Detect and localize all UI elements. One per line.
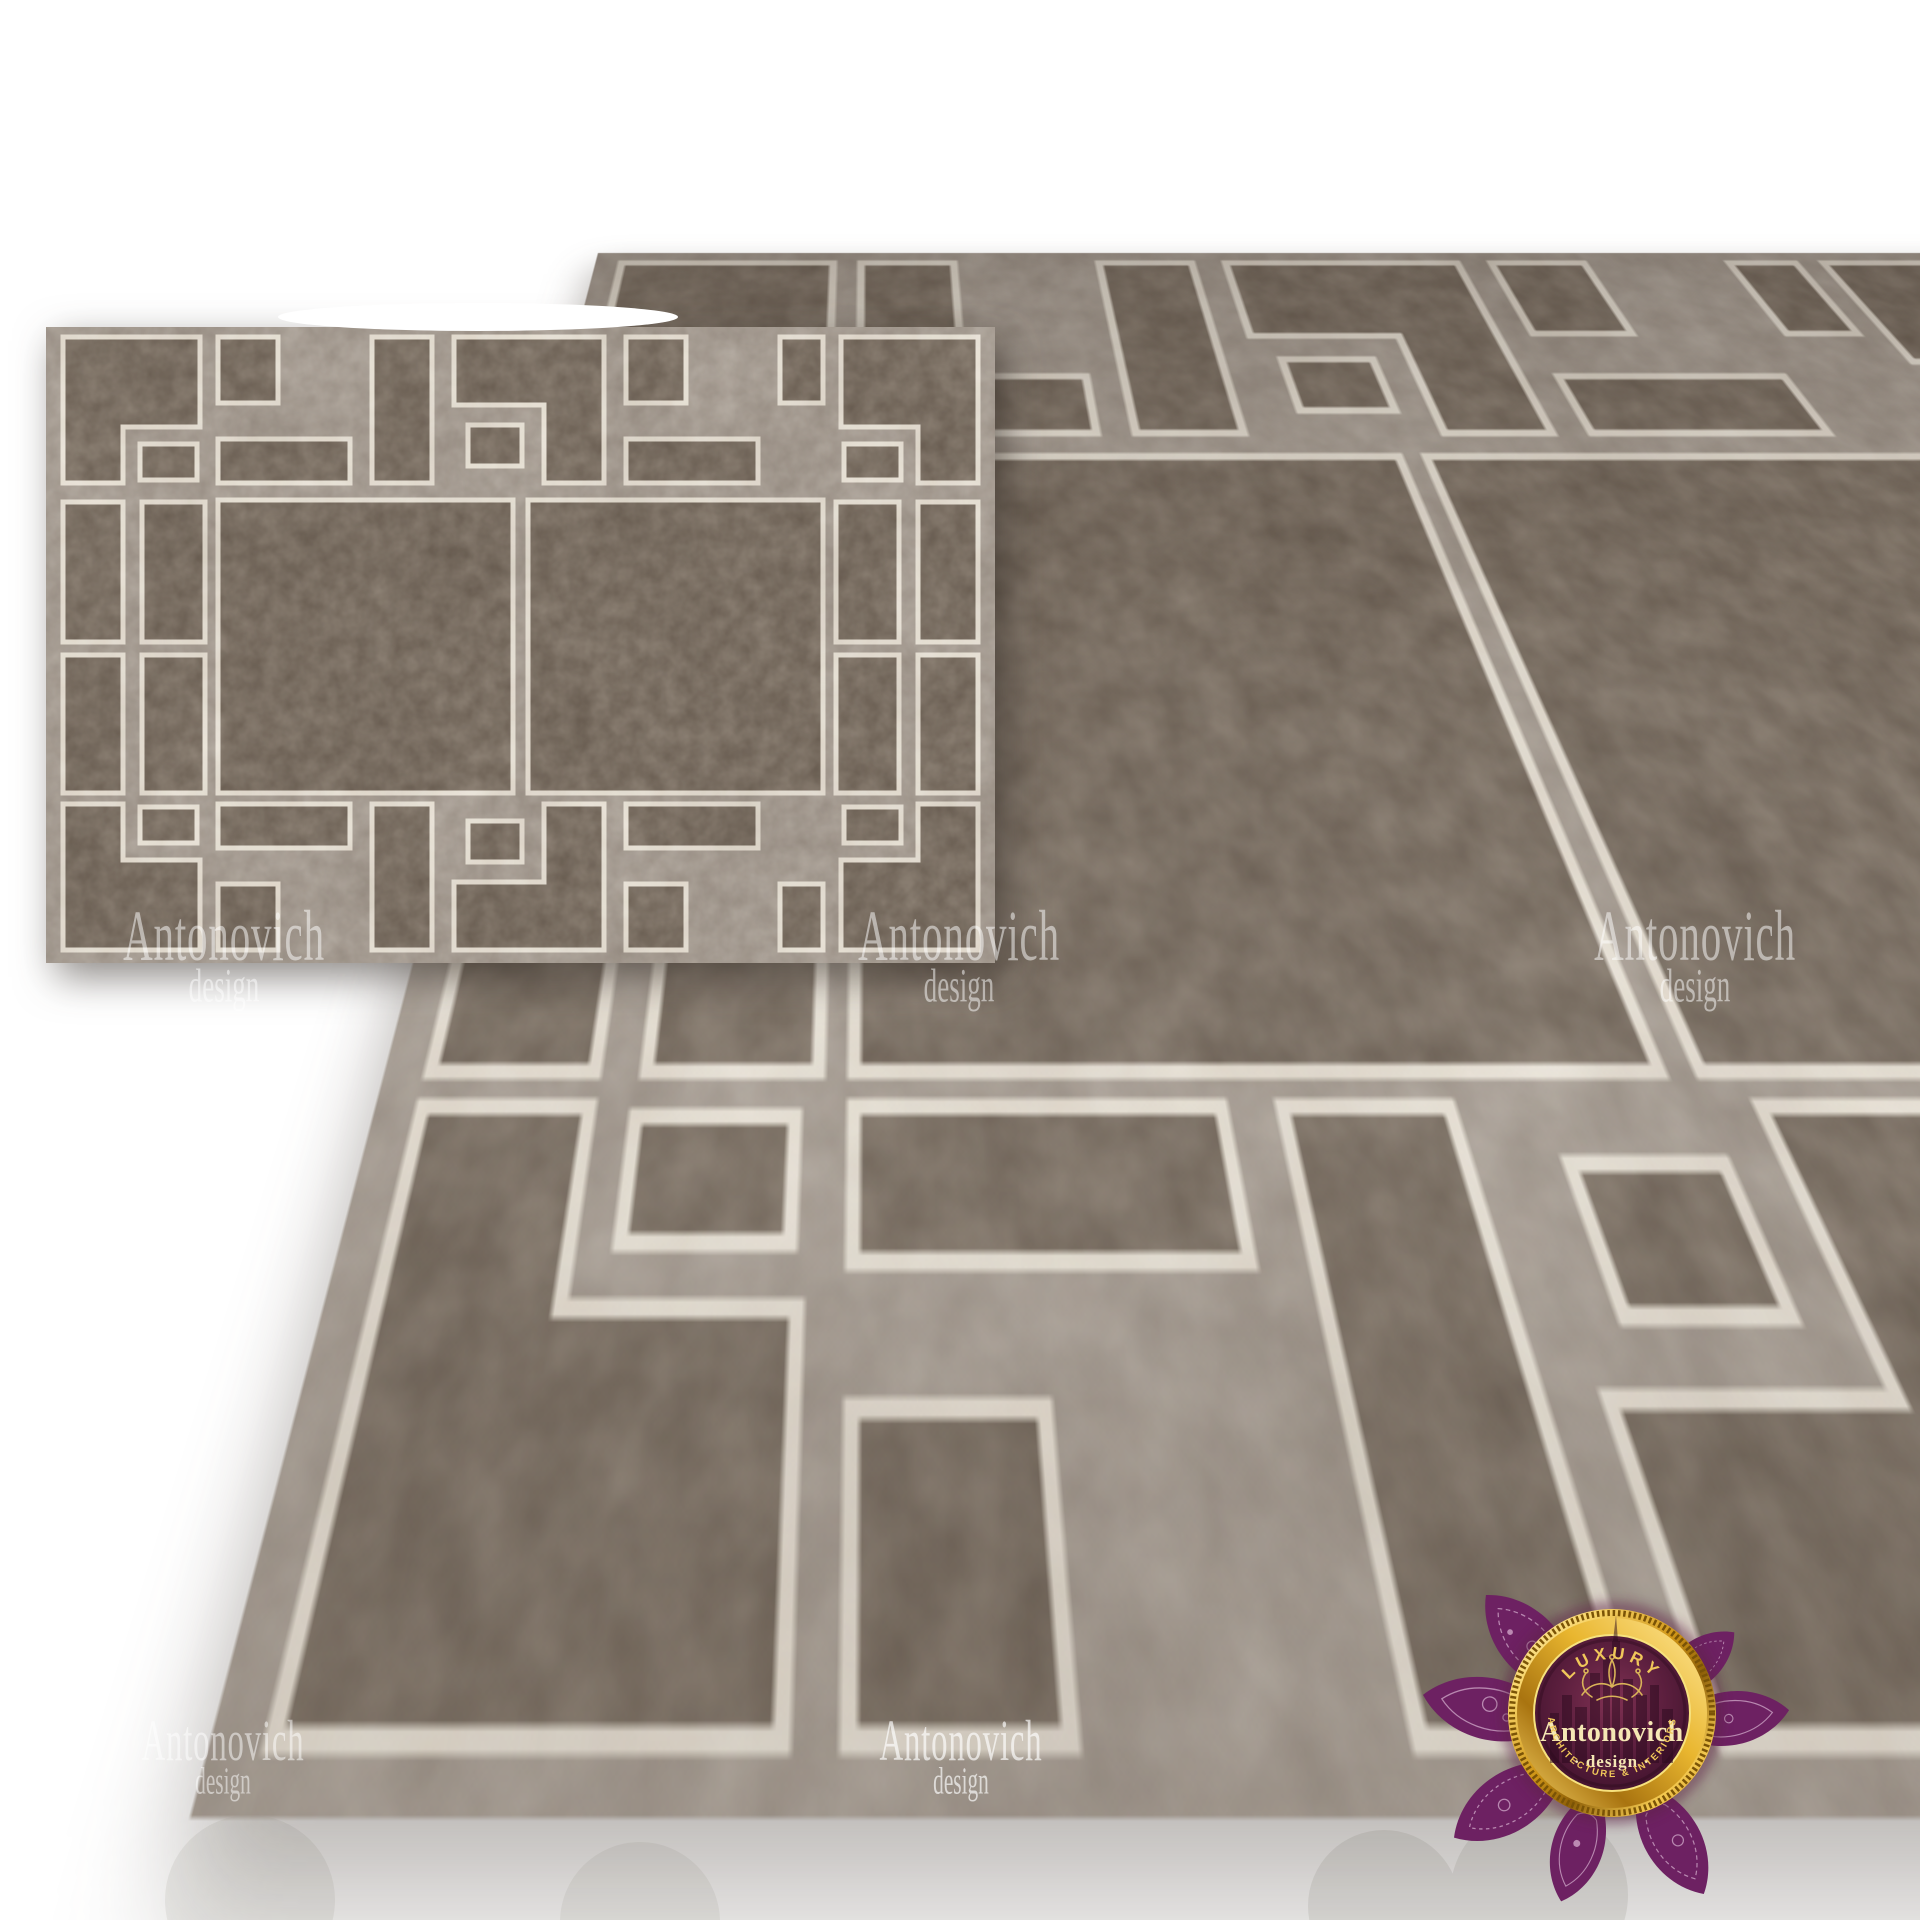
watermark-sub: design — [879, 1763, 1042, 1801]
watermark-antonovich-4: Antonovich design — [862, 1712, 1061, 1789]
watermark-sub: design — [123, 964, 325, 1012]
watermark-sub: design — [1594, 964, 1796, 1012]
watermark-antonovich-2: Antonovich design — [836, 899, 1082, 997]
page-curl-artifact — [278, 303, 678, 331]
watermark-sub: design — [858, 964, 1060, 1012]
rug-pattern-flat — [46, 327, 995, 963]
background-blob-2 — [560, 1842, 720, 1920]
background-blob-1 — [165, 1815, 335, 1920]
watermark-antonovich-3: Antonovich design — [1572, 899, 1818, 997]
watermark-sub: design — [141, 1763, 304, 1801]
gold-medallion: LUXURY Antonovich · design · ARCHITECTUR… — [1500, 1601, 1724, 1825]
rug-flat-view — [46, 327, 995, 963]
watermark-antonovich-1: Antonovich design — [101, 899, 347, 997]
brand-emblem: LUXURY Antonovich · design · ARCHITECTUR… — [1392, 1525, 1832, 1920]
product-canvas: Antonovich design Antonovich design Anto… — [0, 0, 1920, 1920]
watermark-antonovich-5: Antonovich design — [124, 1712, 323, 1789]
